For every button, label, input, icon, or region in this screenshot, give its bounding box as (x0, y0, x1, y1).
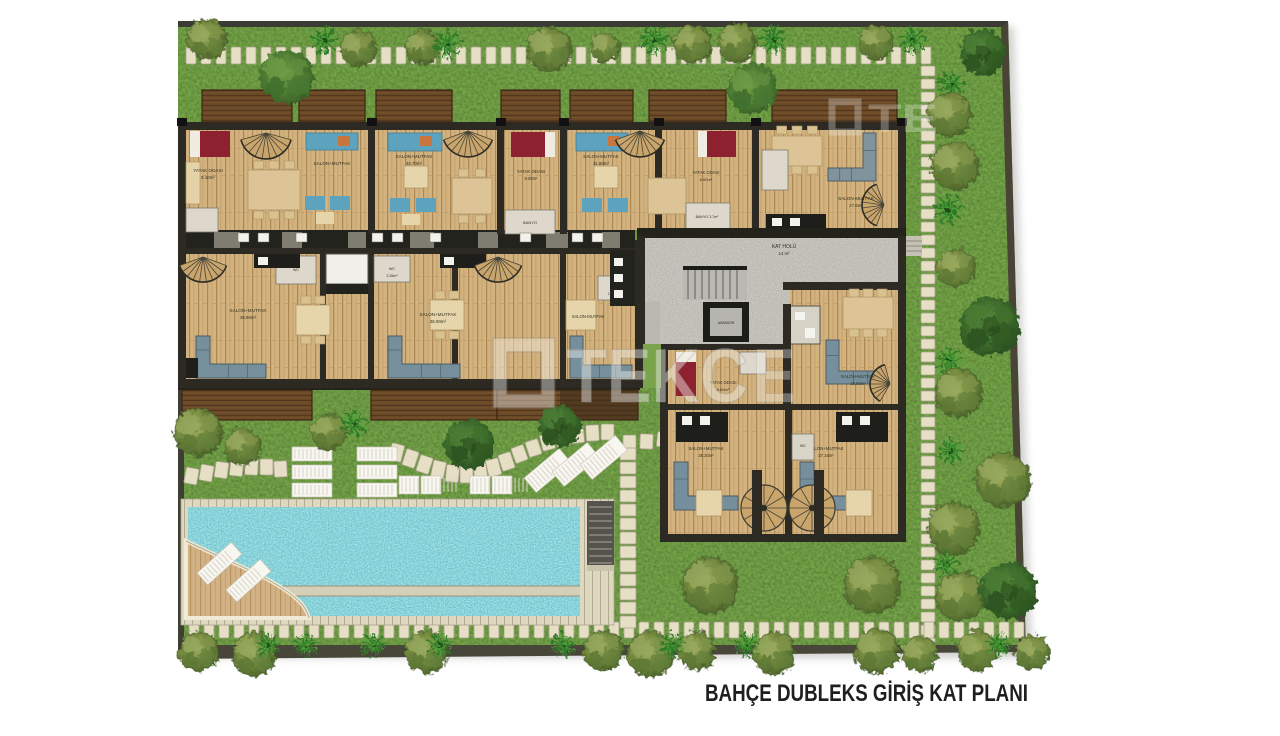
svg-text:29.80m²: 29.80m² (850, 381, 866, 386)
svg-text:KAT HOLÜ: KAT HOLÜ (772, 243, 797, 250)
svg-text:YATAK ODASI: YATAK ODASI (193, 168, 223, 173)
svg-text:SALON+MUTFAK: SALON+MUTFAK (688, 446, 723, 451)
svg-text:TE: TE (868, 97, 938, 141)
svg-text:BANYO: BANYO (523, 220, 537, 225)
svg-text:SALON-MUTFAK: SALON-MUTFAK (838, 196, 875, 201)
svg-text:ASANSÖR: ASANSÖR (718, 321, 735, 325)
svg-text:SALON-MUTFAK: SALON-MUTFAK (583, 154, 620, 159)
svg-text:BAHÇE DUBLEKS GİRİŞ KAT PLANI: BAHÇE DUBLEKS GİRİŞ KAT PLANI (705, 680, 1028, 707)
svg-text:35.90m²: 35.90m² (240, 315, 257, 320)
svg-text:YATAK ODASI: YATAK ODASI (517, 169, 545, 174)
svg-text:32.70m²: 32.70m² (406, 161, 423, 166)
svg-text:28.20m²: 28.20m² (698, 453, 714, 458)
svg-text:27.15m²: 27.15m² (818, 453, 834, 458)
svg-text:WC: WC (389, 267, 396, 271)
svg-text:E: E (752, 334, 796, 419)
svg-text:TEKC: TEKC (566, 334, 748, 419)
svg-text:8.60m²: 8.60m² (700, 177, 713, 182)
svg-text:YATAK ODASI: YATAK ODASI (693, 170, 720, 175)
svg-text:WC: WC (800, 444, 806, 448)
svg-text:WC: WC (293, 268, 300, 272)
svg-text:27.6m²: 27.6m² (849, 203, 863, 208)
svg-text:14 m²: 14 m² (778, 251, 790, 256)
svg-text:31.80m²: 31.80m² (593, 161, 610, 166)
svg-text:3.35m²: 3.35m² (386, 274, 398, 278)
svg-text:9.00m²: 9.00m² (524, 176, 538, 181)
svg-text:BANYO 3.7m²: BANYO 3.7m² (696, 215, 720, 219)
svg-text:SALON+MUTFAK: SALON+MUTFAK (230, 308, 268, 313)
svg-text:SALON+MUTFAK: SALON+MUTFAK (396, 154, 434, 159)
svg-text:36.90m²: 36.90m² (430, 319, 447, 324)
svg-text:SALON-MUTFAK: SALON-MUTFAK (572, 314, 605, 319)
svg-text:SALON-MUTFAK: SALON-MUTFAK (841, 374, 875, 379)
svg-text:SALON+MUTFAK: SALON+MUTFAK (420, 312, 458, 317)
svg-text:SALON+MUTFAK: SALON+MUTFAK (314, 161, 352, 166)
svg-text:9.10m²: 9.10m² (201, 175, 215, 180)
